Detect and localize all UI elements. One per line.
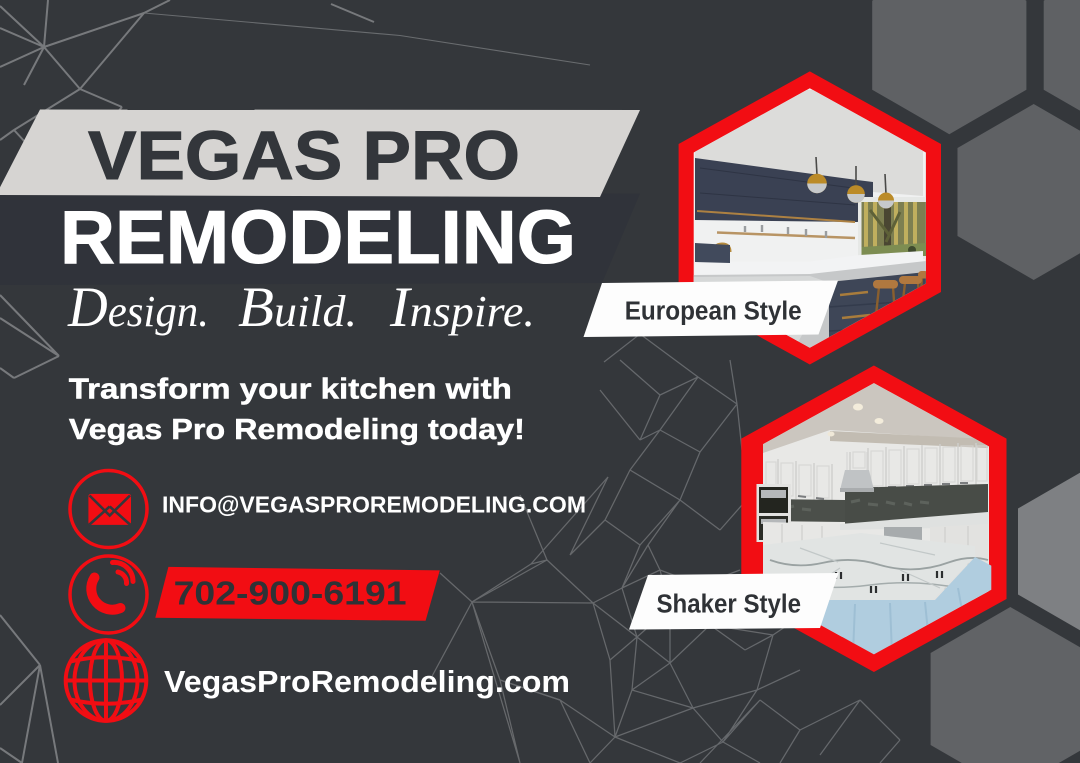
svg-text:European Style: European Style: [625, 298, 802, 326]
svg-text:REMODELING: REMODELING: [60, 195, 576, 279]
svg-text:Inspire.: Inspire.: [389, 276, 535, 339]
svg-text:Shaker Style: Shaker Style: [657, 590, 802, 618]
svg-text:702-900-6191: 702-900-6191: [174, 574, 407, 611]
svg-text:Vegas Pro Remodeling today!: Vegas Pro Remodeling today!: [69, 414, 525, 446]
svg-text:Design.: Design.: [67, 276, 209, 339]
svg-text:Transform your kitchen with: Transform your kitchen with: [69, 374, 512, 406]
svg-text:INFO@VEGASPROREMODELING.COM: INFO@VEGASPROREMODELING.COM: [162, 491, 586, 517]
svg-text:VEGAS PRO: VEGAS PRO: [88, 117, 520, 194]
svg-text:Build.: Build.: [238, 276, 357, 339]
svg-text:VegasProRemodeling.com: VegasProRemodeling.com: [164, 665, 570, 699]
